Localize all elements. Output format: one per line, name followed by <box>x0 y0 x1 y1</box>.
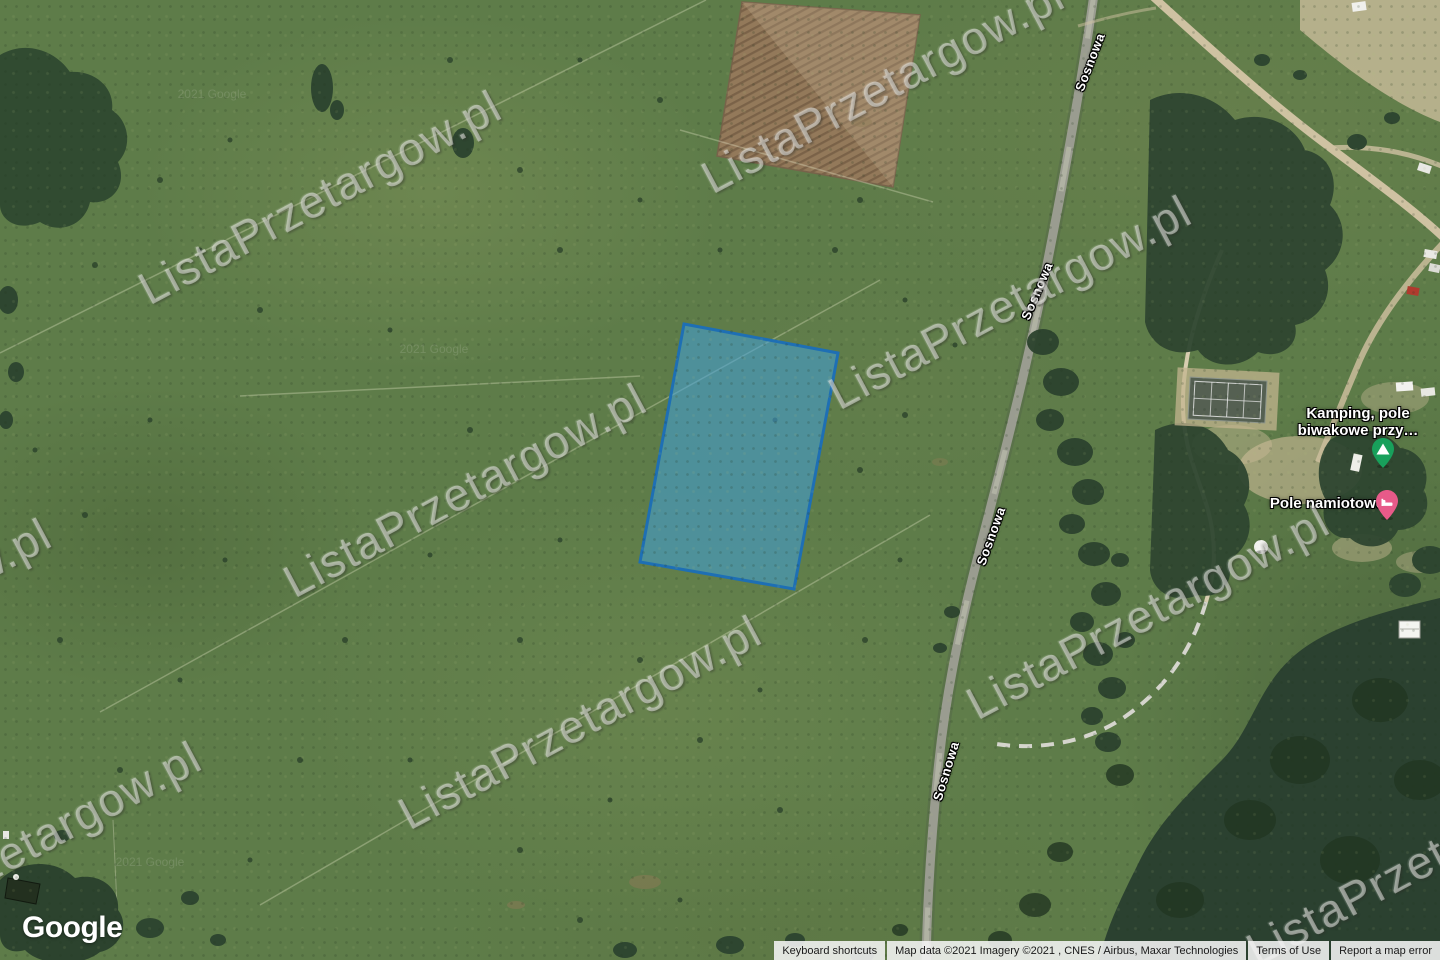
satellite-map[interactable]: Sosnowa Sosnowa Sosnowa Sosnowa Kamping,… <box>0 0 1440 960</box>
tennis-court <box>1175 367 1280 430</box>
report-map-error-link[interactable]: Report a map error <box>1331 941 1440 960</box>
roadside-tree-band <box>933 329 1135 752</box>
google-logo[interactable]: Google <box>22 911 122 945</box>
lodging-pin-icon[interactable] <box>1376 490 1398 520</box>
poi-camping-label[interactable]: Kamping, pole biwakowe przy… <box>1298 405 1419 439</box>
poi-camping-label-line1: Kamping, pole <box>1298 405 1419 422</box>
parcel-fill <box>640 324 838 589</box>
scattered-bushes <box>33 57 958 923</box>
poi-tent-field-label[interactable]: Pole namiotowe <box>1270 495 1384 512</box>
keyboard-shortcuts-button[interactable]: Keyboard shortcuts <box>774 941 885 960</box>
map-footer: Keyboard shortcuts Map data ©2021 Imager… <box>774 941 1440 960</box>
poi-camping-label-line2: biwakowe przy… <box>1298 422 1419 439</box>
parcel-highlight <box>640 324 838 589</box>
campground-pin-icon[interactable] <box>1372 438 1394 468</box>
main-road-sosnowa <box>926 0 1094 960</box>
map-canvas[interactable] <box>0 0 1440 960</box>
plowed-field <box>717 2 920 187</box>
map-data-attribution: Map data ©2021 Imagery ©2021 , CNES / Ai… <box>887 941 1246 960</box>
terms-of-use-link[interactable]: Terms of Use <box>1248 941 1329 960</box>
poi-tent-field-label-text: Pole namiotowe <box>1270 495 1384 512</box>
